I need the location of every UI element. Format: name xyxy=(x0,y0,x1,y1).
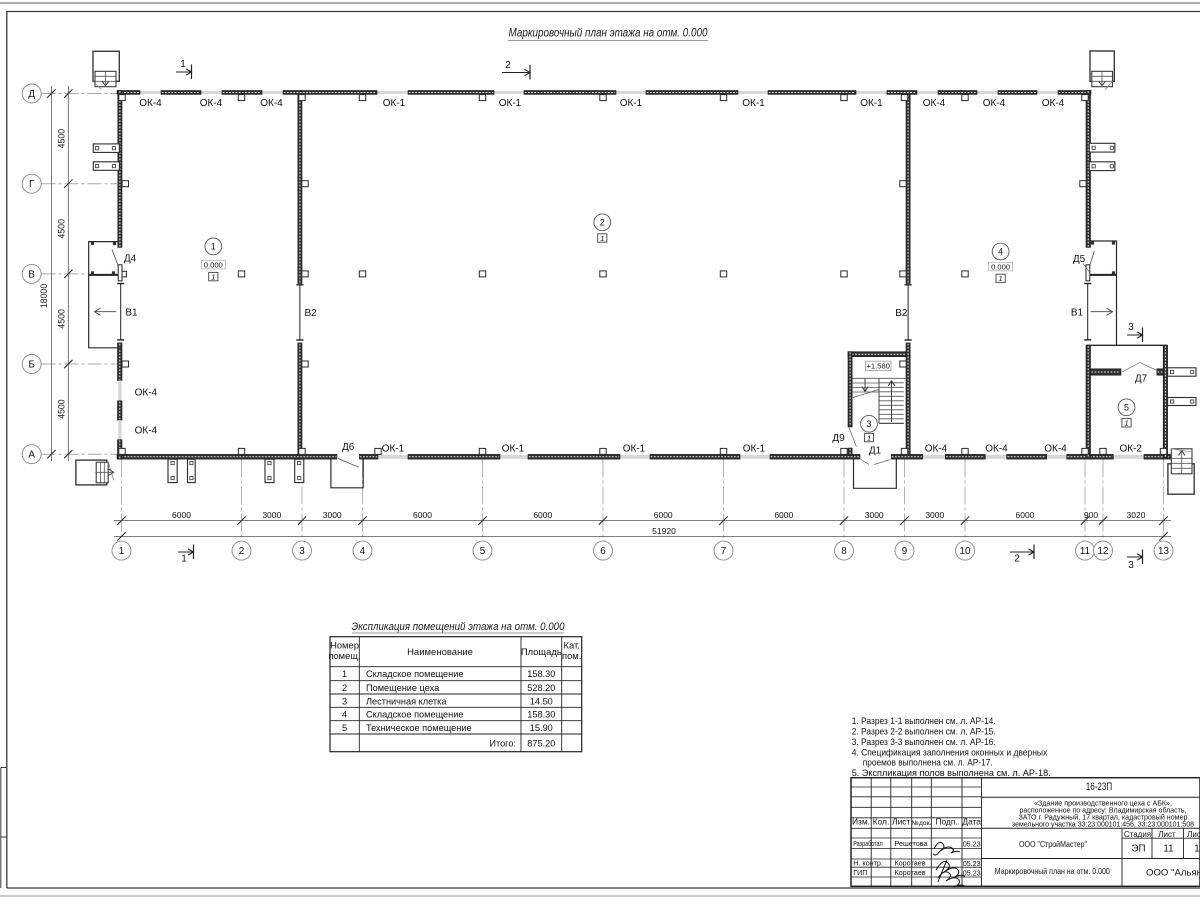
svg-text:ОК-4: ОК-4 xyxy=(139,98,162,109)
svg-text:Д7: Д7 xyxy=(1135,374,1148,385)
svg-text:6000: 6000 xyxy=(172,510,191,520)
svg-text:2: 2 xyxy=(1014,554,1020,565)
svg-text:ООО "СтройМастер": ООО "СтройМастер" xyxy=(1019,840,1087,849)
svg-text:05.23: 05.23 xyxy=(963,868,981,877)
svg-text:В2: В2 xyxy=(305,308,318,319)
svg-text:3: 3 xyxy=(299,546,305,557)
svg-text:Д5: Д5 xyxy=(1073,254,1086,265)
svg-text:Г: Г xyxy=(29,179,35,190)
svg-text:05.23: 05.23 xyxy=(963,859,981,868)
svg-text:Площадь: Площадь xyxy=(521,646,562,657)
svg-text:4: 4 xyxy=(360,546,366,557)
svg-text:16-23П: 16-23П xyxy=(1086,781,1113,793)
svg-text:+1.580: +1.580 xyxy=(866,362,889,371)
svg-text:Стадия: Стадия xyxy=(1124,830,1151,839)
svg-text:1: 1 xyxy=(600,234,604,243)
svg-text:Коротаев: Коротаев xyxy=(895,868,926,877)
svg-text:Решетова: Решетова xyxy=(895,839,928,848)
svg-text:4500: 4500 xyxy=(56,219,66,239)
svg-text:Д9: Д9 xyxy=(832,433,845,444)
svg-text:ОК-1: ОК-1 xyxy=(383,98,406,109)
svg-text:3: 3 xyxy=(1128,322,1134,333)
svg-text:ОК-4: ОК-4 xyxy=(135,388,158,399)
svg-text:ОК-4: ОК-4 xyxy=(923,98,946,109)
svg-text:ОК-2: ОК-2 xyxy=(1119,444,1142,455)
svg-text:Лис: Лис xyxy=(1187,830,1200,839)
svg-text:В1: В1 xyxy=(1071,307,1084,318)
svg-text:6000: 6000 xyxy=(1016,510,1035,520)
svg-text:Маркировочный план этажа на от: Маркировочный план этажа на отм. 0.000 xyxy=(509,26,708,40)
svg-text:5: 5 xyxy=(1124,403,1129,413)
svg-text:900: 900 xyxy=(1084,510,1098,520)
svg-text:4500: 4500 xyxy=(56,129,66,149)
svg-text:1: 1 xyxy=(1124,419,1128,428)
svg-text:2: 2 xyxy=(342,683,347,693)
svg-text:1: 1 xyxy=(180,59,186,70)
svg-text:ОК-1: ОК-1 xyxy=(743,444,766,455)
svg-text:Лист: Лист xyxy=(1158,830,1176,839)
svg-text:11: 11 xyxy=(1163,844,1173,855)
svg-text:1: 1 xyxy=(1194,844,1199,855)
svg-text:3: 3 xyxy=(866,419,871,429)
svg-text:ОК-1: ОК-1 xyxy=(742,98,765,109)
svg-text:ОК-1: ОК-1 xyxy=(620,98,643,109)
svg-text:В: В xyxy=(28,269,35,280)
svg-text:2: 2 xyxy=(505,60,511,71)
svg-text:земельного участка 33:23:00010: земельного участка 33:23:000101:456, 33:… xyxy=(1012,819,1194,828)
svg-text:0.000: 0.000 xyxy=(204,260,223,269)
svg-text:13: 13 xyxy=(1158,546,1169,557)
svg-text:Д6: Д6 xyxy=(342,442,355,453)
svg-text:Кол.: Кол. xyxy=(873,817,890,827)
svg-text:2: 2 xyxy=(600,218,605,228)
svg-text:Складское помещение: Складское помещение xyxy=(366,710,463,720)
svg-text:15.90: 15.90 xyxy=(530,723,553,733)
svg-text:Итого:: Итого: xyxy=(489,739,516,749)
svg-text:Д1: Д1 xyxy=(869,445,882,456)
svg-text:528.20: 528.20 xyxy=(527,683,555,693)
svg-text:6000: 6000 xyxy=(774,510,793,520)
svg-text:4: 4 xyxy=(342,710,347,720)
svg-text:А: А xyxy=(28,450,35,461)
svg-text:9: 9 xyxy=(902,546,907,557)
svg-text:Д4: Д4 xyxy=(124,254,137,265)
svg-text:2. Разрез 2-2 выполнен см. л.: 2. Разрез 2-2 выполнен см. л. АР-15. xyxy=(852,727,996,737)
svg-text:ОК-4: ОК-4 xyxy=(135,426,158,437)
svg-text:3. Разрез 3-3 выполнен см. л.: 3. Разрез 3-3 выполнен см. л. АР-16. xyxy=(852,737,996,747)
svg-text:158.30: 158.30 xyxy=(527,669,555,679)
svg-text:Техническое помещение: Техническое помещение xyxy=(366,723,472,733)
svg-text:8: 8 xyxy=(841,546,847,557)
svg-text:Н. контр.: Н. контр. xyxy=(853,858,883,867)
svg-text:14.50: 14.50 xyxy=(530,696,553,706)
svg-text:6000: 6000 xyxy=(654,510,673,520)
svg-text:Лист: Лист xyxy=(892,817,910,827)
svg-text:Дата: Дата xyxy=(962,817,981,827)
svg-text:158.30: 158.30 xyxy=(527,710,555,720)
svg-text:ЭП: ЭП xyxy=(1131,844,1145,855)
svg-text:4500: 4500 xyxy=(56,399,66,419)
svg-text:1: 1 xyxy=(999,274,1003,283)
svg-text:пом.: пом. xyxy=(562,650,581,661)
svg-text:ОК-4: ОК-4 xyxy=(260,98,283,109)
svg-text:№док.: №док. xyxy=(912,820,932,827)
svg-text:Наименование: Наименование xyxy=(407,647,473,658)
svg-text:4. Спецификация заполнения око: 4. Спецификация заполнения оконных и две… xyxy=(852,748,1048,758)
svg-text:Разработал: Разработал xyxy=(853,839,883,848)
svg-text:Складское помещение: Складское помещение xyxy=(366,669,463,679)
svg-text:3000: 3000 xyxy=(925,510,944,520)
svg-text:3: 3 xyxy=(342,696,347,706)
svg-text:ГИП: ГИП xyxy=(853,868,867,877)
svg-text:5: 5 xyxy=(342,723,347,733)
svg-text:Помещение цеха: Помещение цеха xyxy=(366,683,440,693)
svg-text:05.23: 05.23 xyxy=(963,840,981,849)
svg-text:3000: 3000 xyxy=(865,510,884,520)
svg-text:Кат.: Кат. xyxy=(564,640,580,651)
svg-text:помещ.: помещ. xyxy=(328,650,360,661)
svg-text:Маркировочный план на отм. 0.0: Маркировочный план на отм. 0.000 xyxy=(995,867,1110,876)
svg-text:5. Экспликация полов выполнена: 5. Экспликация полов выполнена см. л. АР… xyxy=(852,768,1051,778)
svg-text:Экспликация помещений этажа на: Экспликация помещений этажа на отм. 0.00… xyxy=(352,621,565,633)
svg-text:ОК-4: ОК-4 xyxy=(925,444,948,455)
svg-text:1: 1 xyxy=(867,433,871,442)
svg-text:6000: 6000 xyxy=(533,510,552,520)
svg-text:18000: 18000 xyxy=(39,284,49,309)
svg-text:1: 1 xyxy=(211,242,216,252)
svg-text:Д: Д xyxy=(28,89,35,100)
svg-text:ОК-1: ОК-1 xyxy=(382,444,405,455)
svg-text:Изм.: Изм. xyxy=(852,817,870,827)
svg-text:0.000: 0.000 xyxy=(991,262,1010,271)
svg-text:1: 1 xyxy=(342,669,347,679)
svg-text:ОК-4: ОК-4 xyxy=(200,98,223,109)
svg-text:Коротаев: Коротаев xyxy=(895,858,926,867)
svg-text:1: 1 xyxy=(181,554,187,565)
svg-text:ОК-4: ОК-4 xyxy=(1042,98,1065,109)
svg-text:6000: 6000 xyxy=(413,510,432,520)
svg-text:7: 7 xyxy=(721,546,726,557)
svg-text:ОК-1: ОК-1 xyxy=(860,98,883,109)
svg-text:5: 5 xyxy=(480,546,486,557)
svg-text:ОК-1: ОК-1 xyxy=(502,444,525,455)
svg-text:3000: 3000 xyxy=(262,510,281,520)
svg-text:3: 3 xyxy=(1128,560,1134,571)
svg-text:875.20: 875.20 xyxy=(527,739,555,749)
svg-text:10: 10 xyxy=(960,546,971,557)
svg-text:Подп.: Подп. xyxy=(935,817,957,827)
svg-text:Номер: Номер xyxy=(330,640,359,651)
svg-text:Б: Б xyxy=(28,360,34,371)
svg-text:6: 6 xyxy=(600,546,606,557)
svg-text:проемов выполнена см. л. АР-17: проемов выполнена см. л. АР-17. xyxy=(863,758,993,768)
svg-text:3020: 3020 xyxy=(1127,510,1146,520)
svg-text:1: 1 xyxy=(119,546,124,557)
svg-text:ОК-1: ОК-1 xyxy=(623,444,646,455)
svg-text:12: 12 xyxy=(1098,546,1109,557)
svg-text:В2: В2 xyxy=(895,308,908,319)
svg-text:3000: 3000 xyxy=(323,510,342,520)
svg-text:51920: 51920 xyxy=(652,526,676,536)
svg-text:ОК-4: ОК-4 xyxy=(983,98,1006,109)
svg-text:2: 2 xyxy=(239,546,244,557)
svg-text:ОК-4: ОК-4 xyxy=(985,444,1008,455)
svg-text:1. Разрез 1-1 выполнен см. л.: 1. Разрез 1-1 выполнен см. л. АР-14. xyxy=(852,716,996,726)
svg-text:Лестничная клетка: Лестничная клетка xyxy=(366,696,447,706)
svg-text:4: 4 xyxy=(998,247,1003,257)
svg-text:4500: 4500 xyxy=(56,309,66,329)
svg-text:ОК-4: ОК-4 xyxy=(1044,444,1067,455)
svg-text:ОК-1: ОК-1 xyxy=(499,98,522,109)
svg-text:В1: В1 xyxy=(125,307,138,318)
svg-text:ООО "Альянс": ООО "Альянс" xyxy=(1146,868,1200,879)
svg-text:11: 11 xyxy=(1080,546,1090,557)
svg-text:1: 1 xyxy=(211,272,215,281)
